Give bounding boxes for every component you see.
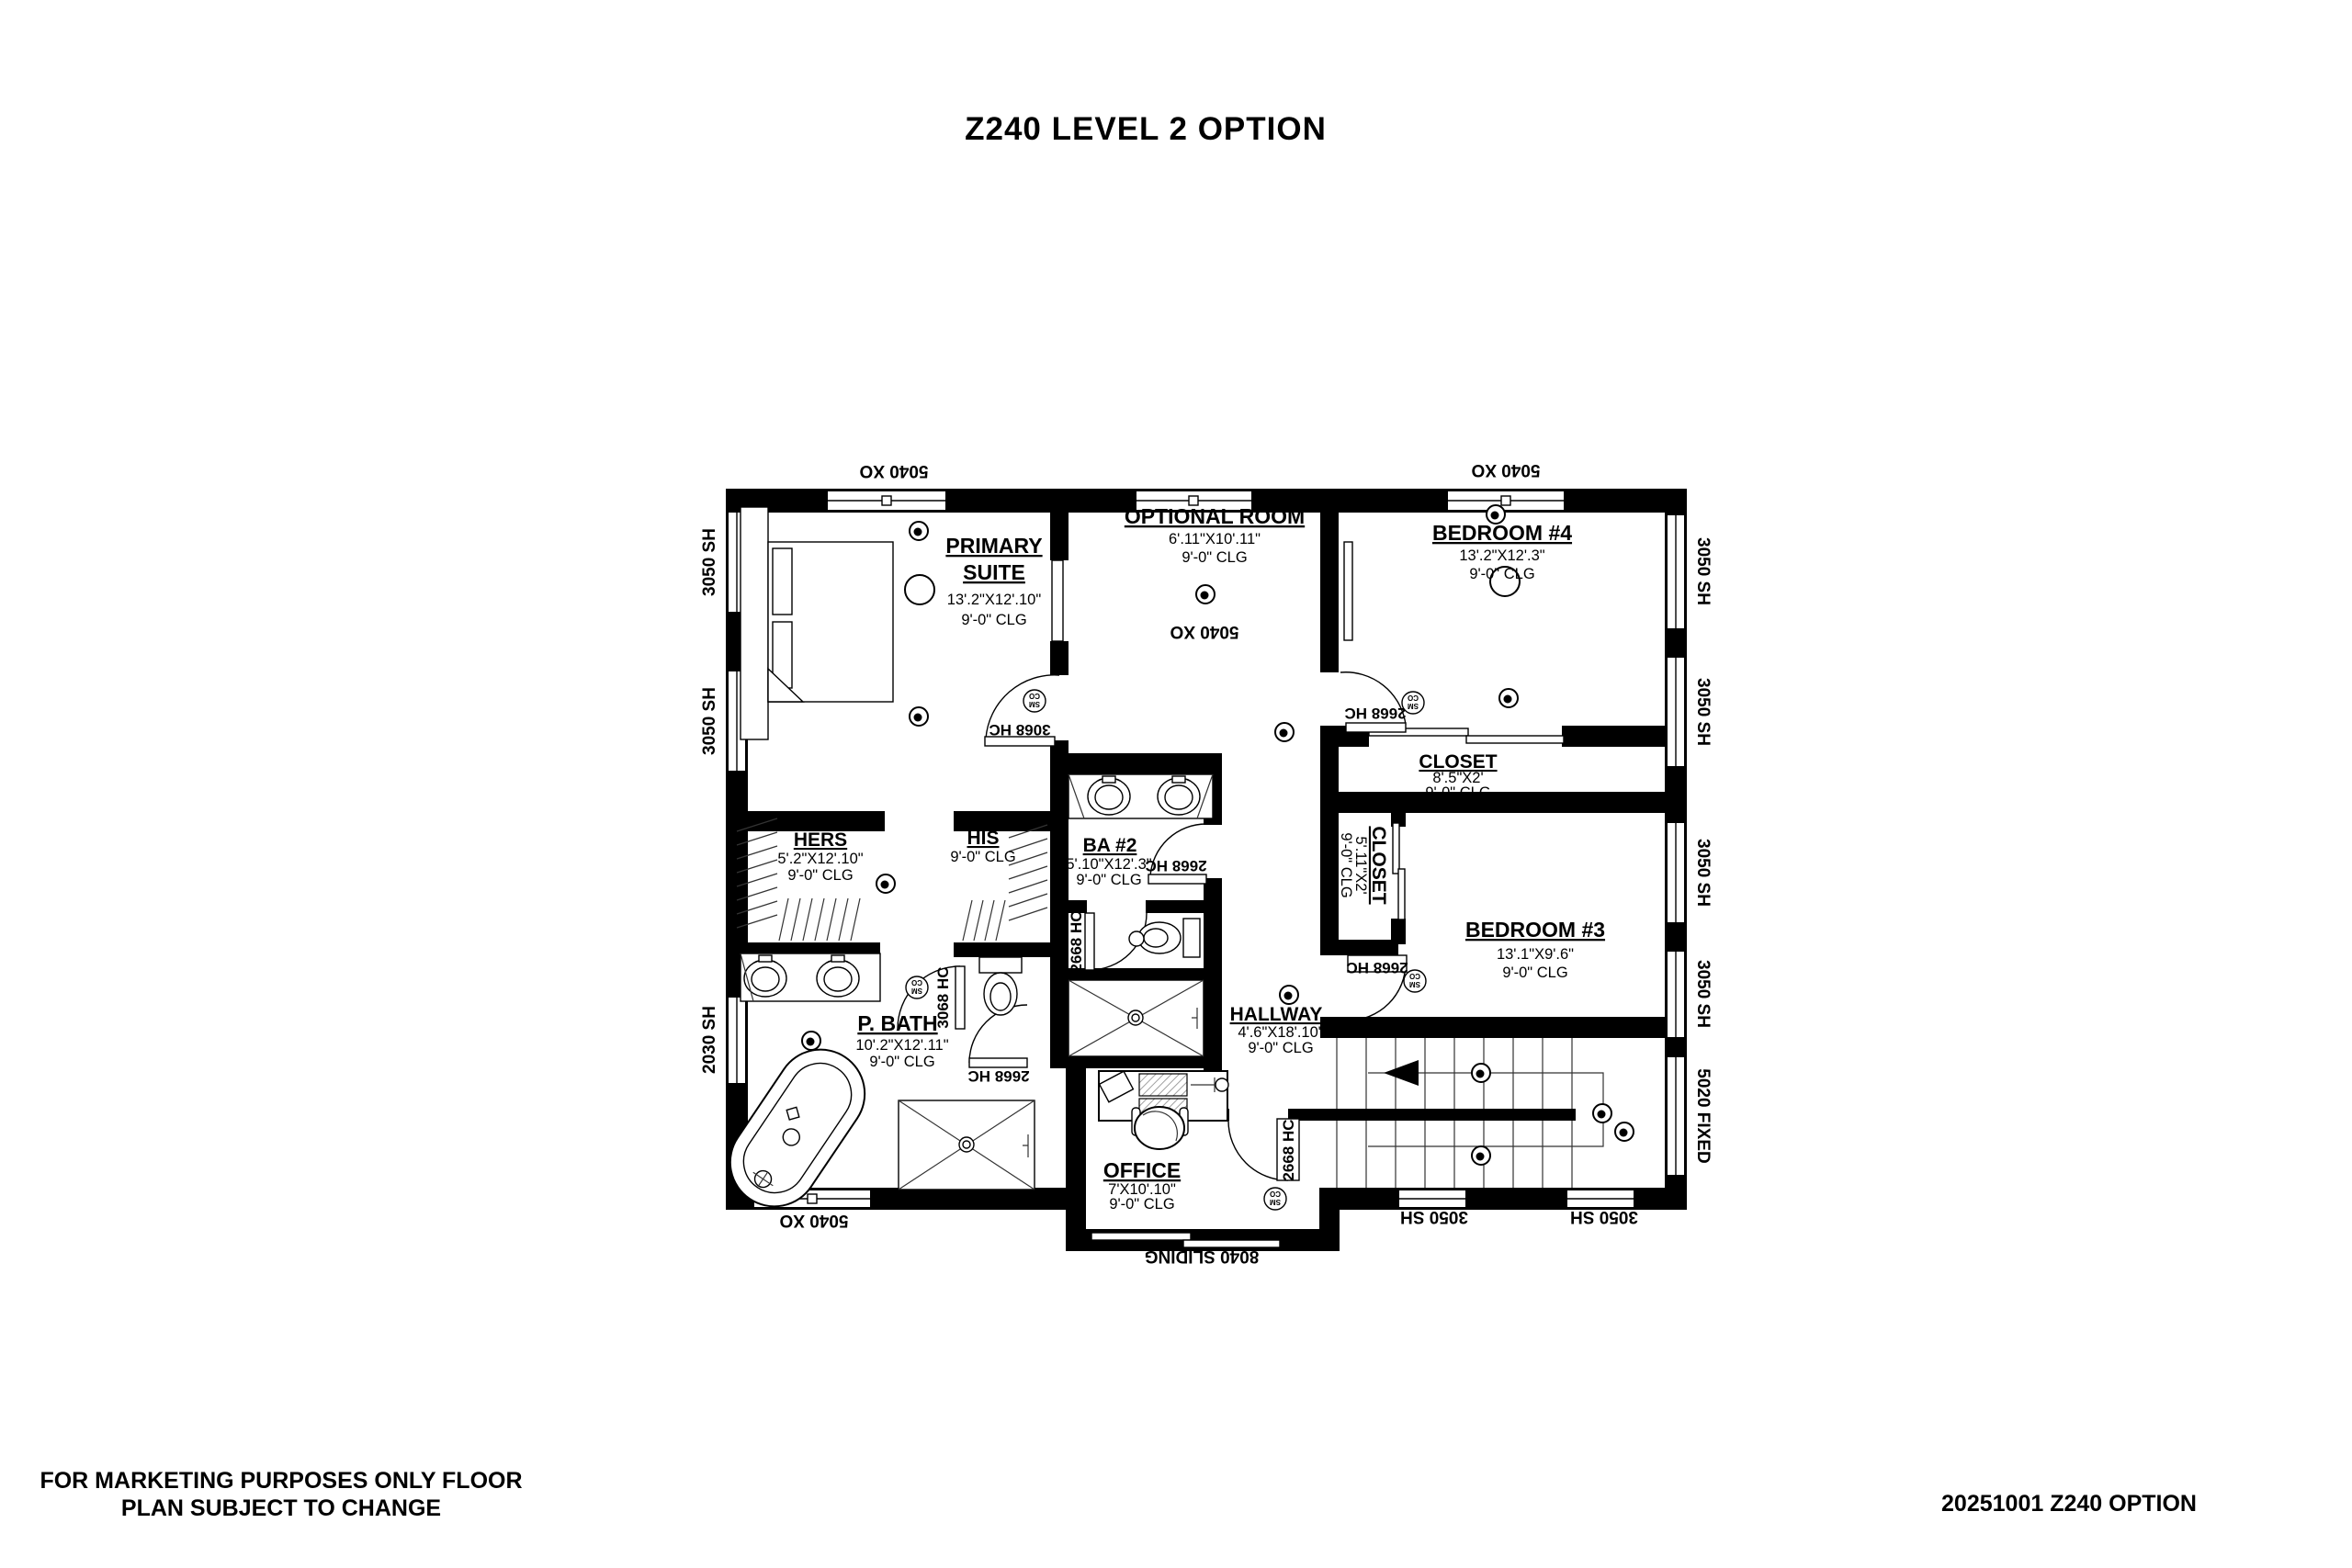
svg-text:CO: CO [1029, 692, 1040, 700]
door-ba2: 2668 HC [1145, 824, 1206, 884]
ba2-shower [1069, 980, 1204, 1056]
window-label: 3050 SH [1693, 960, 1713, 1028]
wall-hallway-east [1320, 726, 1339, 955]
ba2-toilet [1129, 919, 1200, 957]
svg-text:13'.2"X12'.3": 13'.2"X12'.3" [1459, 547, 1544, 564]
svg-text:OPTIONAL ROOM: OPTIONAL ROOM [1125, 504, 1305, 528]
light-icon [1275, 723, 1294, 741]
svg-text:CO: CO [911, 978, 922, 987]
svg-text:10'.2"X12'.11": 10'.2"X12'.11" [855, 1037, 948, 1054]
svg-text:BA #2: BA #2 [1083, 835, 1137, 856]
svg-text:PRIMARY: PRIMARY [945, 534, 1042, 558]
pbath-vanity [741, 953, 880, 1001]
door-label: 2668 HC [1346, 959, 1408, 976]
wall-ba2-west [1050, 772, 1069, 1068]
light-icon [1196, 585, 1215, 604]
room-label-his: HIS 9'-0" CLG [950, 828, 1015, 865]
room-label-office: OFFICE 7'X10'.10" 9'-0" CLG [1103, 1158, 1181, 1213]
pbath-shower [899, 1100, 1035, 1190]
window-2030-sh-left: 2030 SH [700, 997, 746, 1084]
window-label: 3050 SH [1400, 1207, 1468, 1226]
smoke-co-detector-icon: SMCO [1402, 692, 1424, 714]
wall-optional-east [1320, 513, 1339, 672]
stair-treads-lower [1337, 1121, 1572, 1188]
window-3050-sh-bottom-1: 3050 SH [1398, 1190, 1468, 1226]
window-label: 5040 XO [780, 1211, 849, 1230]
svg-text:SUITE: SUITE [963, 560, 1025, 584]
svg-text:SM: SM [1408, 702, 1419, 710]
door-label: 2668 HC [967, 1067, 1029, 1085]
window-3050-sh-right-4: 3050 SH [1667, 951, 1713, 1038]
wall-closet4-south [1339, 792, 1665, 813]
svg-text:9'-0" CLG: 9'-0" CLG [1109, 1196, 1174, 1213]
closet4-slider-2 [1466, 736, 1564, 743]
bed [741, 507, 893, 739]
door-label: 2668 HC [1068, 910, 1085, 972]
svg-text:HERS: HERS [794, 829, 847, 851]
light-icon [910, 522, 928, 540]
door-office: 2668 HC [1228, 1119, 1299, 1181]
svg-text:13'.1"X9'.6": 13'.1"X9'.6" [1497, 946, 1574, 963]
window-label: 8040 SLIDING [1145, 1247, 1260, 1266]
window-label: 3050 SH [1693, 537, 1713, 605]
wall-office-west [1066, 1068, 1086, 1229]
wall-ba2-wc-2 [1146, 900, 1204, 913]
svg-text:6'.11"X10'.11": 6'.11"X10'.11" [1169, 531, 1261, 547]
room-label-hers: HERS 5'.2"X12'.10" 9'-0" CLG [777, 829, 863, 884]
disclaimer-line2: PLAN SUBJECT TO CHANGE [121, 1495, 441, 1521]
svg-text:9'-0" CLG: 9'-0" CLG [1076, 872, 1141, 888]
svg-text:OFFICE: OFFICE [1103, 1158, 1181, 1182]
light-icon [1472, 1064, 1490, 1082]
smoke-co-detector-icon: SMCO [906, 976, 928, 998]
wall-office-right-jog [1319, 1188, 1340, 1251]
wall-primary-east-1 [1050, 513, 1069, 560]
plan-id: 20251001 Z240 OPTION [1941, 1491, 2197, 1517]
hers-rod-bottom [779, 898, 860, 941]
door-label: 2668 HC [1344, 705, 1406, 722]
svg-text:9'-0" CLG: 9'-0" CLG [950, 849, 1015, 865]
light-icon [802, 1032, 820, 1050]
svg-text:9'-0" CLG: 9'-0" CLG [869, 1054, 934, 1070]
window-3050-sh-left-2: 3050 SH [700, 671, 746, 772]
light-icon [1615, 1122, 1634, 1141]
door-primary-suite: 3068 HC [985, 675, 1059, 746]
office-chair [1132, 1107, 1188, 1149]
ceiling-fixture-icon [905, 575, 934, 604]
window-label: 3050 SH [1570, 1207, 1638, 1226]
ba2-vanity [1069, 774, 1213, 818]
room-label-optional-room: OPTIONAL ROOM 6'.11"X10'.11" 9'-0" CLG [1125, 504, 1305, 566]
faucet [831, 955, 844, 962]
faucet [1102, 776, 1115, 783]
wall-his-south [954, 942, 1050, 957]
window-label: 5020 FIXED [1693, 1068, 1713, 1164]
svg-text:BEDROOM #4: BEDROOM #4 [1432, 521, 1572, 545]
footer: FOR MARKETING PURPOSES ONLY FLOOR PLAN S… [40, 1468, 2197, 1521]
window-label: 5040 XO [1472, 460, 1541, 479]
closet3-slider-1 [1393, 823, 1399, 874]
window-label: 3050 SH [1693, 839, 1713, 907]
window-label: 3050 SH [700, 687, 719, 755]
wall-primary-east-2 [1050, 641, 1069, 675]
smoke-co-detector-icon: SMCO [1404, 970, 1426, 992]
window-3050-sh-left-1: 3050 SH [700, 512, 746, 613]
wall-ba2-shower-south [1050, 1056, 1222, 1068]
svg-text:9'-0" CLG: 9'-0" CLG [1469, 566, 1534, 582]
room-label-bedroom4: BEDROOM #4 13'.2"X12'.3" 9'-0" CLG [1432, 521, 1572, 582]
window-3050-sh-right-3: 3050 SH [1667, 822, 1713, 923]
room-label-pbath: P. BATH 10'.2"X12'.11" 9'-0" CLG [855, 1011, 948, 1070]
room-label-hallway: HALLWAY 4'.6"X18'.10" 9'-0" CLG [1230, 1004, 1324, 1056]
svg-text:SM: SM [1270, 1198, 1281, 1206]
stair-direction-arrow [1384, 1060, 1419, 1086]
svg-text:CO: CO [1409, 972, 1420, 980]
svg-text:5'.2"X12'.10": 5'.2"X12'.10" [777, 851, 863, 867]
svg-text:9'-0" CLG: 9'-0" CLG [1248, 1040, 1313, 1056]
door-pbath-wc: 2668 HC [967, 1005, 1029, 1085]
svg-text:SM: SM [1409, 980, 1420, 988]
light-icon [1472, 1146, 1490, 1165]
smoke-co-detector-icon: SMCO [1264, 1188, 1286, 1210]
window-5020-fixed-right: 5020 FIXED [1667, 1056, 1713, 1176]
his-rod-bottom [963, 900, 1005, 941]
wall-stairs-north [1288, 1109, 1576, 1121]
light-icon [876, 874, 895, 893]
door-bedroom4: 2668 HC [1340, 672, 1407, 732]
room-label-closet3: CLOSET 5'.11"X2' 9'-0" CLG [1338, 826, 1389, 904]
smoke-co-detector-icon: SMCO [1023, 690, 1046, 712]
room-label-bedroom3: BEDROOM #3 13'.1"X9'.6" 9'-0" CLG [1465, 918, 1605, 981]
faucet [1172, 776, 1185, 783]
svg-text:HIS: HIS [967, 828, 999, 849]
svg-text:5'.10"X12'.3": 5'.10"X12'.3" [1066, 856, 1151, 873]
door-label: 2668 HC [1145, 857, 1206, 874]
page-title: Z240 LEVEL 2 OPTION [965, 111, 1327, 147]
svg-text:9'-0" CLG: 9'-0" CLG [1182, 549, 1247, 566]
svg-text:CLOSET: CLOSET [1368, 826, 1389, 904]
window-3050-sh-right-1: 3050 SH [1667, 514, 1713, 629]
window-label: 5040 XO [1170, 622, 1239, 641]
door-label: 3068 HC [989, 721, 1050, 739]
light-icon [1593, 1104, 1611, 1122]
window-3050-sh-right-2: 3050 SH [1667, 657, 1713, 767]
opening-primary-optional [1052, 560, 1063, 641]
window-label: 5040 XO [860, 461, 929, 480]
window-label: 3050 SH [700, 528, 719, 596]
svg-text:BEDROOM #3: BEDROOM #3 [1465, 918, 1605, 942]
svg-text:CO: CO [1270, 1190, 1281, 1198]
disclaimer-line1: FOR MARKETING PURPOSES ONLY FLOOR [40, 1468, 522, 1494]
svg-text:4'.6"X18'.10": 4'.6"X18'.10" [1238, 1024, 1323, 1041]
closet3-slider-2 [1398, 869, 1405, 919]
svg-text:9'-0" CLG: 9'-0" CLG [1502, 964, 1567, 981]
light-icon [910, 707, 928, 726]
svg-text:HALLWAY: HALLWAY [1230, 1004, 1323, 1025]
desk-lamp [1216, 1078, 1228, 1091]
room-label-ba2: BA #2 5'.10"X12'.3" 9'-0" CLG [1066, 835, 1151, 888]
svg-text:13'.2"X12'.10": 13'.2"X12'.10" [947, 592, 1042, 608]
faucet [759, 955, 772, 962]
room-label-primary-suite: PRIMARY SUITE 13'.2"X12'.10" 9'-0" CLG [945, 534, 1042, 628]
svg-text:9'-0" CLG: 9'-0" CLG [787, 867, 853, 884]
light-icon [1499, 689, 1518, 707]
wall-bedroom4-south-2 [1562, 726, 1665, 747]
floor-plan-page: Z240 LEVEL 2 OPTION [0, 0, 2352, 1568]
window-5040-xo-primary: 5040 XO [827, 461, 946, 511]
door-bedroom3: 2668 HC [1346, 955, 1408, 1021]
light-icon [1280, 986, 1298, 1004]
his-rod-right [1009, 825, 1047, 920]
svg-text:CO: CO [1408, 694, 1419, 702]
floor-plan-canvas: Z240 LEVEL 2 OPTION [0, 0, 2352, 1568]
wall-closet3-south [1329, 940, 1398, 955]
window-5040-xo-bedroom4: 5040 XO [1447, 460, 1565, 511]
svg-text:SM: SM [1029, 700, 1040, 708]
svg-text:SM: SM [911, 987, 922, 995]
window-3050-sh-bottom-2: 3050 SH [1566, 1190, 1638, 1226]
panel-bedroom4 [1344, 542, 1352, 640]
room-label-closet4: CLOSET 8'.5"X2' 9'-0" CLG [1419, 751, 1497, 801]
window-label: 3050 SH [1693, 678, 1713, 746]
svg-text:9'-0" CLG: 9'-0" CLG [961, 612, 1026, 628]
wall-bedroom3-south [1320, 1017, 1665, 1038]
svg-text:9'-0" CLG: 9'-0" CLG [1338, 832, 1354, 897]
svg-text:9'-0" CLG: 9'-0" CLG [1425, 784, 1490, 801]
wall-ba2-north [1069, 753, 1222, 774]
door-label: 2668 HC [1280, 1119, 1297, 1180]
svg-text:P. BATH: P. BATH [857, 1011, 937, 1035]
window-label: 2030 SH [700, 1006, 719, 1074]
